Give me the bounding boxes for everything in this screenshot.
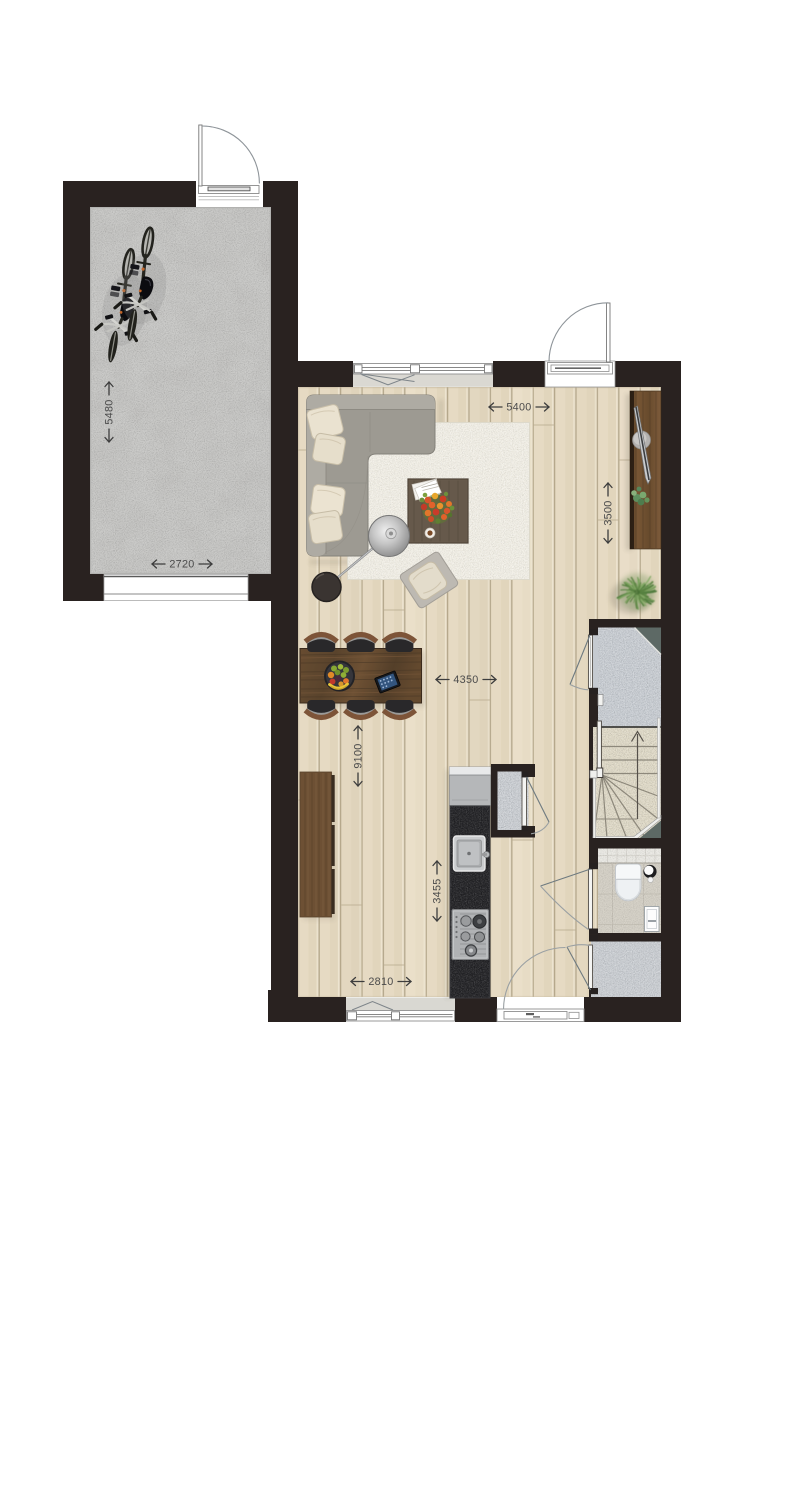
- svg-text:4350: 4350: [453, 674, 478, 686]
- svg-text:5480: 5480: [104, 399, 116, 424]
- svg-text:3455: 3455: [432, 878, 444, 903]
- svg-text:3500: 3500: [603, 500, 615, 525]
- svg-text:5400: 5400: [506, 402, 531, 414]
- svg-text:9100: 9100: [353, 743, 365, 768]
- svg-text:2720: 2720: [169, 559, 194, 571]
- svg-text:2810: 2810: [368, 976, 393, 988]
